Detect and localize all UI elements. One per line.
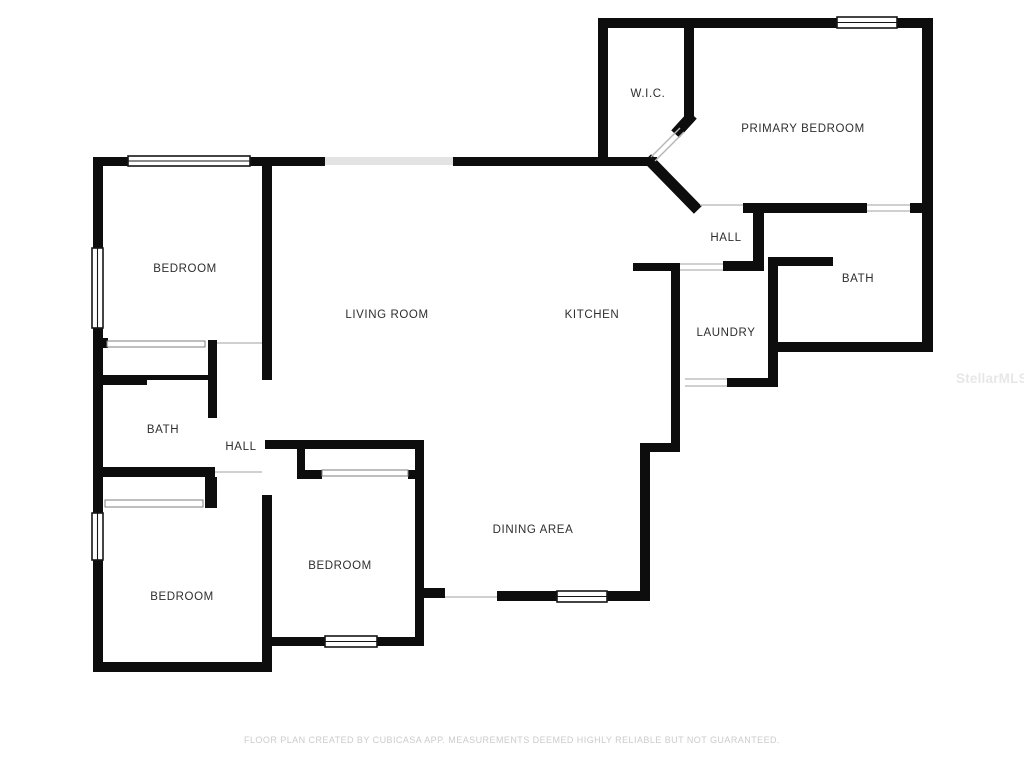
wic-door-line [651,128,680,157]
room-label-living-room: LIVING ROOM [345,309,428,321]
wic-door-line [655,132,684,161]
room-label-hall-right: HALL [710,232,741,244]
room-label-dining-area: DINING AREA [493,524,574,536]
room-label-bedroom-top-left: BEDROOM [153,263,217,275]
footer-disclaimer: FLOOR PLAN CREATED BY CUBICASA APP. MEAS… [0,735,1024,745]
closet-door [107,341,205,347]
wall-segment [671,271,680,452]
wall-segment [205,477,217,508]
diagonal-wall [679,119,689,130]
wall-segment [598,18,837,28]
room-label-kitchen: KITCHEN [565,309,620,321]
wall-segment [408,470,424,479]
wall-segment [262,637,325,646]
closet-door [322,470,408,476]
wall-segment [93,157,103,248]
wall-segment [93,157,130,166]
closet-door [105,500,203,507]
room-label-bedroom-bottom-left: BEDROOM [150,591,214,603]
wall-segment [768,257,778,387]
wall-segment [778,257,833,266]
wall-segment [910,203,922,213]
floor-plan-page: PRIMARY BEDROOMW.I.C.HALLBATHLAUNDRYKITC… [0,0,1024,768]
wall-segment [93,560,103,672]
wall-segment [753,207,764,265]
wall-segment [147,375,217,380]
wall-segment [208,340,217,418]
wall-segment [633,263,680,271]
wall-segment [727,378,773,387]
wall-segment [377,637,424,646]
wall-segment [453,157,657,166]
room-label-wic: W.I.C. [631,88,666,100]
wall-segment [897,18,933,28]
wall-segment [247,157,325,166]
room-label-bath-left: BATH [147,424,179,436]
wall-segment [684,28,694,121]
wall-segment [265,440,423,449]
room-label-primary-bedroom: PRIMARY BEDROOM [741,123,865,135]
wall-segment [768,342,933,352]
wall-segment [497,591,557,601]
wall-segment [922,18,933,352]
room-label-bath-right: BATH [842,273,874,285]
floor-plan-svg: PRIMARY BEDROOMW.I.C.HALLBATHLAUNDRYKITC… [0,0,1024,768]
room-label-bedroom-middle: BEDROOM [308,560,372,572]
wall-segment [93,662,272,672]
wall-segment [262,165,272,380]
wall-segment [93,375,147,385]
stellar-mls-watermark: StellarMLS [956,371,1024,386]
wall-segment [598,28,608,165]
wall-segment [423,588,445,598]
wall-opening-segment [325,157,453,165]
wall-segment [93,328,103,513]
wall-segment [743,203,867,213]
wall-segment [640,443,650,601]
room-label-laundry: LAUNDRY [697,327,756,339]
room-label-hall-left: HALL [225,441,256,453]
diagonal-wall [651,162,694,206]
wall-segment [297,470,322,479]
wall-segment [93,467,215,477]
